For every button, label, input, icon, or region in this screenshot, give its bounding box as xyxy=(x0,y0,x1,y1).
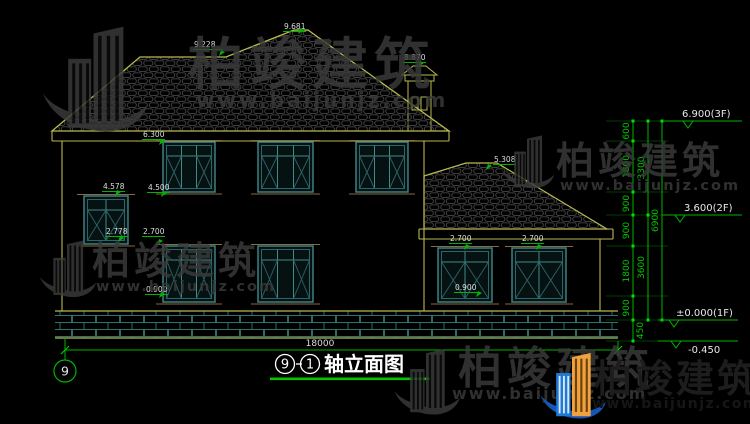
window xyxy=(251,141,320,195)
watermark-url-text: www.baijunjz.com xyxy=(96,279,276,295)
elevation-label: 6.300 xyxy=(143,130,165,139)
dim-value: 900 xyxy=(622,195,632,212)
brand-logo-icon xyxy=(40,240,96,297)
level-label: ±0.000(1F) xyxy=(676,308,733,319)
elevation-label: 2.700 xyxy=(450,234,472,243)
logo-building-window xyxy=(79,245,81,291)
level-3f: 6.900(3F) xyxy=(664,109,742,128)
elevation-annotation-stair-window-top: 4.578 xyxy=(102,182,125,196)
elevation-label: 5.308 xyxy=(494,155,516,164)
logo-building-window xyxy=(534,140,536,183)
window-frame xyxy=(258,142,313,192)
logo-building-window xyxy=(69,245,71,291)
brick-base xyxy=(55,311,618,338)
logo-building-window xyxy=(56,260,58,292)
logo-building-window xyxy=(74,245,76,291)
logo-building-window xyxy=(563,376,565,413)
level-label: 3.600(2F) xyxy=(684,203,733,214)
dim-tick xyxy=(647,120,650,123)
logo-building-window xyxy=(538,140,540,183)
dim-tick xyxy=(632,120,635,123)
wing-eave-band xyxy=(419,229,613,239)
logo-building-window xyxy=(63,260,65,292)
watermark-url-text: www.baijunjz.com xyxy=(560,178,740,194)
elevation-label: 9.681 xyxy=(284,22,306,31)
elevation-label: 2.700 xyxy=(522,234,544,243)
logo-building-window xyxy=(586,359,588,412)
elevation-annotation-2f-window-top: 6.300 xyxy=(142,130,165,145)
logo-building-window xyxy=(516,154,518,184)
logo-building-window xyxy=(559,376,561,413)
elevation-label: 4.500 xyxy=(148,183,170,192)
dim-tick xyxy=(647,214,650,217)
logo-building-window xyxy=(567,376,569,413)
dim-tick xyxy=(661,120,664,123)
window xyxy=(349,141,415,195)
logo-building-window xyxy=(520,154,522,184)
watermark-brand-text: 柏竣建筑 xyxy=(556,139,724,183)
logo-building-window xyxy=(98,36,101,121)
watermark-url-text: www.baijunjz.com xyxy=(196,88,448,112)
window xyxy=(505,247,573,305)
logo-building-window xyxy=(529,140,531,183)
main-eave-band xyxy=(52,131,449,141)
title-axis-end: 1 xyxy=(306,358,314,373)
elevation-drawing: 9.2289.6818.8706.3004.5784.5002.7782.700… xyxy=(0,0,750,424)
elevation-label: 0.900 xyxy=(455,283,477,292)
elevation-label: 4.578 xyxy=(103,182,125,191)
dim-tick xyxy=(632,295,635,298)
title-block: 9 1 轴立面图 xyxy=(270,352,430,380)
logo-building-window xyxy=(115,36,118,121)
cad-canvas: 9.2289.6818.8706.3004.5784.5002.7782.700… xyxy=(0,0,750,424)
window xyxy=(431,247,499,305)
window-frame xyxy=(163,142,215,192)
dim-tick xyxy=(632,245,635,248)
level-2f: 3.600(2F) xyxy=(662,203,742,222)
logo-building-window xyxy=(79,63,82,123)
drawing-title: 轴立面图 xyxy=(324,352,404,376)
dim-tick xyxy=(632,319,635,322)
logo-building-window xyxy=(434,355,436,408)
axis-bubble-number: 9 xyxy=(61,364,69,379)
level-1f: ±0.000(1F) xyxy=(658,308,738,327)
logo-building-window xyxy=(429,355,431,408)
level-ground: -0.450 xyxy=(658,341,738,356)
logo-building-window xyxy=(86,63,89,123)
title-underline xyxy=(270,378,430,381)
logo-building-window xyxy=(421,372,423,409)
plan-width-dim: 18000 xyxy=(306,339,335,349)
brand-logo-icon xyxy=(394,349,460,415)
axis-bubble: 9 xyxy=(54,360,76,382)
logo-building-window xyxy=(107,36,110,121)
logo-building-window xyxy=(72,63,75,123)
dim-value: 900 xyxy=(622,222,632,239)
dim-value: 600 xyxy=(622,122,632,139)
elevation-label: 2.778 xyxy=(106,227,128,236)
dim-tick xyxy=(632,214,635,217)
dim-value: 3600 xyxy=(637,256,647,279)
dim-tick xyxy=(647,319,650,322)
level-label: -0.450 xyxy=(688,345,720,356)
dim-value: 900 xyxy=(622,299,632,316)
logo-building-window xyxy=(440,355,442,408)
dim-value: 1800 xyxy=(622,259,632,282)
logo-building-window xyxy=(575,359,577,412)
dim-value: 6900 xyxy=(651,209,661,232)
logo-brand-text: 柏竣建筑 xyxy=(594,357,750,401)
title-axis-start: 9 xyxy=(281,358,289,373)
logo-building-window xyxy=(417,372,419,409)
logo-building-window xyxy=(580,359,582,412)
elevation-label: 2.700 xyxy=(143,227,165,236)
logo-url-text: www.baijunjz.com xyxy=(592,396,750,412)
dim-value: 450 xyxy=(636,322,646,339)
logo-building-window xyxy=(523,154,525,184)
logo-building-window xyxy=(413,372,415,409)
watermark-brand-text: 柏竣建筑 xyxy=(92,239,260,283)
window xyxy=(251,245,320,305)
logo-building-window xyxy=(59,260,61,292)
elevation-annotation-2f-window-sill: 4.500 xyxy=(147,183,170,197)
level-label: 6.900(3F) xyxy=(682,109,731,120)
window-frame xyxy=(356,142,408,192)
